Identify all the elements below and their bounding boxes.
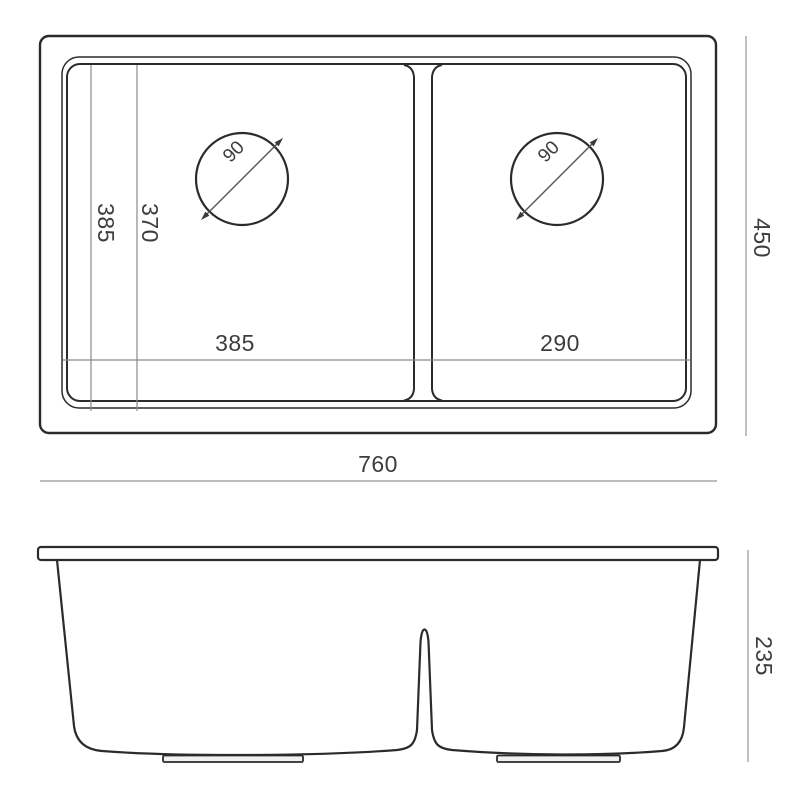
right-bowl-foot bbox=[497, 756, 620, 763]
front-view: 235 bbox=[38, 547, 777, 762]
sink-rim-profile bbox=[38, 547, 718, 560]
left-bowl-foot bbox=[163, 756, 303, 763]
bowl-length-label: 385 bbox=[93, 203, 119, 243]
top-view: 90 90 385 370 385 290 450 760 bbox=[40, 36, 775, 481]
left-bowl-width-label: 385 bbox=[215, 330, 255, 356]
drawing-canvas: 90 90 385 370 385 290 450 760 bbox=[0, 0, 800, 794]
bowl-inner-length-label: 370 bbox=[137, 203, 163, 243]
sink-technical-drawing: 90 90 385 370 385 290 450 760 bbox=[0, 0, 800, 794]
overall-depth-label: 450 bbox=[749, 218, 775, 258]
right-bowl-width-label: 290 bbox=[540, 330, 580, 356]
overall-height-label: 235 bbox=[751, 636, 777, 676]
overall-width-label: 760 bbox=[358, 451, 398, 477]
sink-body-profile bbox=[57, 560, 700, 755]
